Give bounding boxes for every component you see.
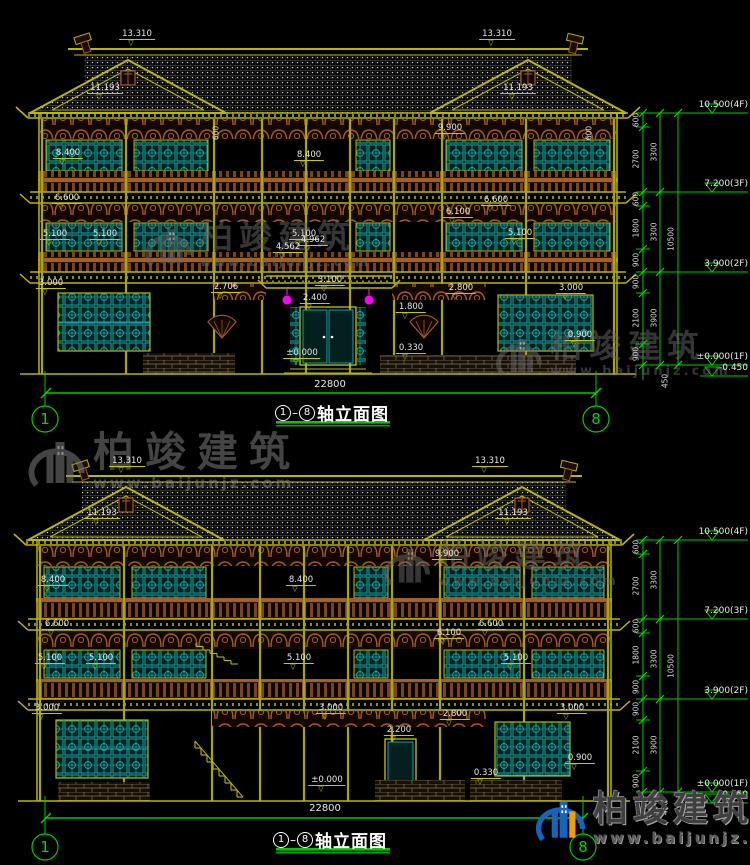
dimension-text: 8.400 (38, 576, 68, 586)
chain-dimension-label: 3300 (650, 222, 659, 241)
level-triangle-icon: ▽ (78, 240, 120, 246)
level-dimension-label: 8.400▽ (38, 576, 68, 592)
overall-width-dimension: 22800 (309, 803, 341, 814)
drawing-title-part: 8 (299, 405, 315, 421)
dimension-text: 13.310 (472, 457, 508, 467)
chain-dimension-label: 10500 (667, 227, 676, 251)
level-triangle-icon: ▽ (469, 206, 511, 212)
level-dimension-label: 3.000▽ (557, 704, 587, 720)
dimension-text: 2.800 (440, 710, 470, 720)
level-dimension-label: 6.100▽ (434, 629, 464, 645)
level-triangle-icon: ▽ (282, 161, 324, 167)
level-dimension-label: 0.900▽ (565, 331, 595, 347)
dimension-text: 0.330 (396, 344, 426, 354)
dimension-text: 3.000 (32, 704, 62, 714)
axis-number: 8 (578, 838, 588, 856)
level-triangle-icon: ▽ (23, 664, 65, 670)
chain-dimension-label: 10500 (667, 654, 676, 678)
chain-dimension-label: 900 (632, 774, 641, 788)
dimension-text: 2.706 (211, 283, 241, 293)
dimension-text: 13.310 (119, 30, 155, 40)
chain-dimension-label: 2100 (632, 735, 641, 754)
level-triangle-icon: ▽ (303, 286, 345, 292)
chain-dimension-label: 600 (632, 192, 641, 206)
drawing-title-part: – (290, 833, 296, 847)
drawing-title-part: 8 (297, 832, 313, 848)
dimension-text: 6.600 (42, 620, 72, 630)
level-triangle-icon: ▽ (423, 134, 465, 140)
level-dimension-label: 2.706▽ (211, 283, 241, 299)
level-dimension-label: 6.600▽ (481, 196, 511, 212)
dimension-text: 5.100 (35, 654, 65, 664)
chain-dimension-label: 3900 (650, 735, 659, 754)
level-triangle-icon: ▽ (460, 467, 508, 473)
drawing-title: 1–8轴立面图 (275, 400, 389, 425)
chain-dimension-label: 900 (632, 275, 641, 289)
level-dimension-label: 0.330▽ (396, 344, 426, 360)
level-dimension-label: 11.193▽ (500, 84, 536, 100)
level-triangle-icon: ▽ (26, 586, 68, 592)
level-dimension-label: 9.900▽ (435, 124, 465, 140)
dimension-text: 9.900 (435, 124, 465, 134)
chain-dimension-label: 900 (632, 253, 641, 267)
level-triangle-icon: ▽ (40, 204, 82, 210)
dimension-text: 0.900 (565, 331, 595, 341)
level-dimension-label: 6.100▽ (443, 208, 473, 224)
level-dimension-label: 11.193▽ (87, 84, 123, 100)
chain-dimension-label: 600 (632, 540, 641, 554)
level-dimension-label: 2.800▽ (446, 284, 476, 300)
level-dimension-label: 6.600▽ (52, 194, 82, 210)
chain-dimension-label: 3300 (650, 570, 659, 589)
dimension-text: 0.900 (565, 754, 595, 764)
level-triangle-icon: ▽ (41, 159, 83, 165)
level-triangle-icon: ▽ (384, 313, 426, 319)
level-triangle-icon: ▽ (553, 764, 595, 770)
chain-dimension-label: 3300 (650, 649, 659, 668)
drawing-title-part: 轴立面图 (315, 827, 387, 852)
level-dimension-label: 3.000▽ (316, 704, 346, 720)
dimension-text: 6.100 (434, 629, 464, 639)
level-dimension-label: ±0.000▽ (308, 776, 345, 792)
level-triangle-icon: ▽ (489, 664, 531, 670)
dimension-text: 8.400 (286, 576, 316, 586)
level-dimension-label: 1.800▽ (396, 303, 426, 319)
level-triangle-icon: ▽ (107, 40, 155, 46)
chain-dimension-label: 3300 (650, 142, 659, 161)
level-triangle-icon: ▽ (72, 519, 120, 525)
axis-number: 1 (40, 410, 50, 428)
dimension-text: 6.100 (443, 208, 473, 218)
elevation-level-label: -0.450 (719, 790, 748, 800)
level-triangle-icon: ▽ (75, 94, 123, 100)
dimension-label-rotated: 600 (585, 126, 594, 140)
dimension-text: 3.000 (556, 284, 586, 294)
dimension-text: 6.600 (52, 194, 82, 204)
dimension-text: 4.562 (273, 243, 303, 253)
level-dimension-label: 8.400▽ (294, 151, 324, 167)
level-triangle-icon: ▽ (199, 293, 241, 299)
dimension-text: ±0.000 (283, 349, 320, 359)
level-dimension-label: 3.000▽ (32, 704, 62, 720)
axis-number: 1 (40, 838, 50, 856)
dimension-text: 5.100 (86, 654, 116, 664)
annotation-layer: 13.310▽13.310▽11.193▽11.193▽9.900▽8.400▽… (0, 0, 750, 865)
cad-canvas: 柏竣建筑www.baijunjz.com柏竣建筑www.baijunjz.com… (0, 0, 750, 865)
axis-number: 8 (591, 410, 601, 428)
dimension-text: 8.400 (294, 151, 324, 161)
drawing-title: 1–8轴立面图 (273, 827, 387, 852)
chain-dimension-label: 2700 (632, 576, 641, 595)
level-triangle-icon: ▽ (296, 786, 345, 792)
level-triangle-icon: ▽ (97, 467, 145, 473)
level-dimension-label: 2.200▽ (384, 726, 414, 742)
dimension-text: 11.193 (84, 509, 120, 519)
overall-width-dimension: 22800 (314, 379, 346, 390)
level-triangle-icon: ▽ (459, 779, 501, 785)
level-dimension-label: 13.310▽ (479, 30, 515, 46)
level-triangle-icon: ▽ (431, 218, 473, 224)
level-dimension-label: 13.310▽ (472, 457, 508, 473)
level-triangle-icon: ▽ (20, 714, 62, 720)
dimension-text: 3.100 (315, 276, 345, 286)
elevation-level-label: 10.500(4F) (699, 527, 748, 537)
level-dimension-label: 11.193▽ (495, 509, 531, 525)
elevation-level-label: ±0.000(1F) (697, 779, 748, 789)
chain-dimension-label: 3900 (650, 308, 659, 327)
dimension-text: 9.900 (432, 550, 462, 560)
level-dimension-label: 8.400▽ (286, 576, 316, 592)
chain-dimension-label: 2700 (632, 149, 641, 168)
dimension-text: 11.193 (500, 84, 536, 94)
elevation-level-label: ±0.000(1F) (697, 352, 748, 362)
dimension-text: 5.100 (501, 654, 531, 664)
level-triangle-icon: ▽ (545, 714, 587, 720)
level-dimension-label: 3.000▽ (36, 279, 66, 295)
level-dimension-label: ±0.000▽ (283, 349, 320, 365)
dimension-text: ±0.000 (308, 776, 345, 786)
level-triangle-icon: ▽ (544, 294, 586, 300)
level-dimension-label: 0.900▽ (565, 754, 595, 770)
level-triangle-icon: ▽ (271, 359, 320, 365)
level-triangle-icon: ▽ (261, 253, 303, 259)
chain-dimension-label: 1800 (632, 218, 641, 237)
elevation-level-label: 7.200(3F) (704, 606, 748, 616)
dimension-text: 2.400 (300, 294, 330, 304)
level-dimension-label: 5.100▽ (284, 654, 314, 670)
level-triangle-icon: ▽ (74, 664, 116, 670)
level-dimension-label: 5.100▽ (40, 230, 70, 246)
level-triangle-icon: ▽ (483, 519, 531, 525)
chain-dimension-label: 600 (632, 113, 641, 127)
level-triangle-icon: ▽ (428, 720, 470, 726)
chain-dimension-label: 900 (632, 347, 641, 361)
drawing-title-part: – (292, 406, 298, 420)
level-triangle-icon: ▽ (304, 714, 346, 720)
level-dimension-label: 2.800▽ (440, 710, 470, 726)
dimension-label-rotated: 600 (212, 126, 221, 140)
drawing-title-part: 1 (275, 405, 291, 421)
drawing-title-part: 1 (273, 832, 289, 848)
level-dimension-label: 4.562▽ (273, 243, 303, 259)
elevation-level-label: 3.900(2F) (704, 686, 748, 696)
level-dimension-label: 0.330▽ (471, 769, 501, 785)
level-triangle-icon: ▽ (372, 736, 414, 742)
dimension-text: 13.310 (109, 457, 145, 467)
elevation-level-label: 10.500(4F) (699, 100, 748, 110)
elevation-level-label: 3.900(2F) (704, 259, 748, 269)
level-triangle-icon: ▽ (467, 40, 515, 46)
level-triangle-icon: ▽ (384, 354, 426, 360)
dimension-text: 5.100 (90, 230, 120, 240)
level-dimension-label: 2.400▽ (300, 294, 330, 310)
level-dimension-label: 13.310▽ (109, 457, 145, 473)
chain-dimension-label: 1800 (632, 645, 641, 664)
level-triangle-icon: ▽ (28, 240, 70, 246)
dimension-text: 3.000 (36, 279, 66, 289)
chain-dimension-label: 450 (661, 374, 670, 388)
dimension-text: 5.100 (40, 230, 70, 240)
dimension-text: 6.600 (476, 620, 506, 630)
level-triangle-icon: ▽ (288, 304, 330, 310)
level-dimension-label: 6.600▽ (42, 620, 72, 636)
level-triangle-icon: ▽ (422, 639, 464, 645)
chain-dimension-label: 900 (632, 702, 641, 716)
dimension-text: 2.800 (446, 284, 476, 294)
level-dimension-label: 5.100▽ (35, 654, 65, 670)
elevation-level-label: 7.200(3F) (704, 179, 748, 189)
dimension-text: 6.600 (481, 196, 511, 206)
elevation-level-label: -0.450 (719, 363, 748, 373)
level-dimension-label: 3.100▽ (315, 276, 345, 292)
dimension-text: 11.193 (87, 84, 123, 94)
dimension-text: 5.100 (505, 229, 535, 239)
dimension-text: 11.193 (495, 509, 531, 519)
chain-dimension-label: 2100 (632, 308, 641, 327)
level-triangle-icon: ▽ (274, 586, 316, 592)
dimension-text: 1.800 (396, 303, 426, 313)
chain-dimension-label: 900 (632, 680, 641, 694)
dimension-text: 2.200 (384, 726, 414, 736)
level-dimension-label: 8.400▽ (53, 149, 83, 165)
dimension-text: 0.330 (471, 769, 501, 779)
level-dimension-label: 9.900▽ (432, 550, 462, 566)
chain-dimension-label: 450 (661, 801, 670, 815)
level-triangle-icon: ▽ (553, 341, 595, 347)
level-triangle-icon: ▽ (30, 630, 72, 636)
level-triangle-icon: ▽ (464, 630, 506, 636)
level-dimension-label: 5.100▽ (501, 654, 531, 670)
dimension-text: 3.000 (557, 704, 587, 714)
level-triangle-icon: ▽ (488, 94, 536, 100)
dimension-text: 5.100 (284, 654, 314, 664)
drawing-title-part: 轴立面图 (317, 400, 389, 425)
level-dimension-label: 13.310▽ (119, 30, 155, 46)
dimension-text: 13.310 (479, 30, 515, 40)
level-triangle-icon: ▽ (493, 239, 535, 245)
level-dimension-label: 11.193▽ (84, 509, 120, 525)
level-dimension-label: 5.100▽ (86, 654, 116, 670)
level-triangle-icon: ▽ (420, 560, 462, 566)
level-triangle-icon: ▽ (272, 664, 314, 670)
level-dimension-label: 5.100▽ (90, 230, 120, 246)
level-dimension-label: 6.600▽ (476, 620, 506, 636)
level-dimension-label: 5.100▽ (505, 229, 535, 245)
level-dimension-label: 3.000▽ (556, 284, 586, 300)
chain-dimension-label: 600 (632, 619, 641, 633)
level-triangle-icon: ▽ (24, 289, 66, 295)
dimension-text: 3.000 (316, 704, 346, 714)
level-triangle-icon: ▽ (434, 294, 476, 300)
dimension-text: 8.400 (53, 149, 83, 159)
